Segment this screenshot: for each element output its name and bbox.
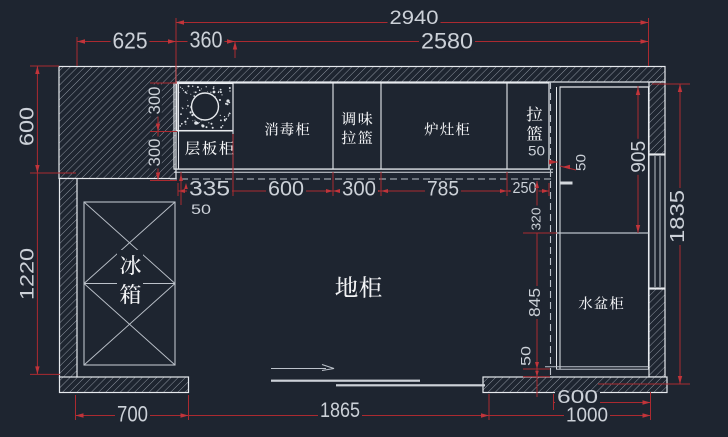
svg-text:1835: 1835 [667, 190, 689, 243]
svg-text:360: 360 [190, 26, 223, 52]
svg-text:600: 600 [557, 387, 598, 407]
svg-text:600: 600 [17, 107, 39, 146]
svg-text:300: 300 [145, 139, 164, 167]
svg-text:50: 50 [528, 143, 545, 159]
svg-text:905: 905 [628, 141, 650, 173]
svg-text:845: 845 [527, 288, 544, 317]
svg-text:50: 50 [191, 201, 211, 217]
svg-text:50: 50 [518, 346, 534, 366]
svg-text:335: 335 [189, 177, 230, 200]
svg-text:320: 320 [529, 207, 543, 230]
svg-text:1865: 1865 [320, 399, 360, 422]
svg-text:50: 50 [573, 154, 589, 171]
svg-text:2940: 2940 [390, 8, 439, 29]
svg-text:785: 785 [427, 177, 459, 200]
svg-text:2580: 2580 [421, 29, 473, 54]
svg-text:625: 625 [113, 27, 148, 53]
svg-text:250: 250 [513, 180, 537, 197]
svg-text:700: 700 [117, 402, 148, 427]
svg-text:300: 300 [145, 87, 164, 115]
svg-text:1000: 1000 [566, 405, 608, 427]
svg-text:1220: 1220 [17, 248, 38, 300]
svg-text:300: 300 [342, 177, 376, 200]
svg-text:600: 600 [268, 177, 304, 200]
